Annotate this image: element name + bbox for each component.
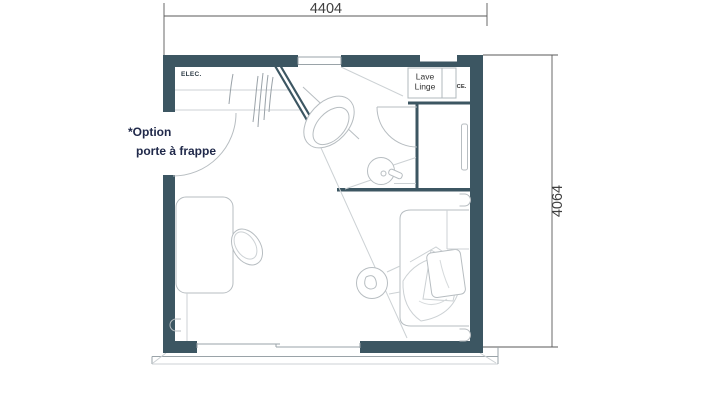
interior-walls [337, 102, 470, 192]
lave-linge-label-line2: Linge [415, 82, 436, 92]
floor-plan-drawing: 4404 4064 ELEC. Lave Linge CE. *Option p… [0, 0, 705, 410]
wall-outlet-right-bottom [460, 329, 471, 341]
bay-window [197, 343, 360, 348]
stool [357, 268, 388, 299]
ce-label: CE. [457, 84, 467, 90]
elec-label: ELEC. [181, 71, 202, 78]
bathroom-door [377, 107, 417, 147]
shower-panel [462, 124, 468, 170]
partition-guide-line [341, 67, 403, 96]
slope-line [312, 128, 407, 338]
wall-outlet-right-top [460, 194, 471, 206]
top-window [298, 57, 341, 65]
dimension-height-label: 4064 [550, 185, 566, 217]
lave-linge-label-line1: Lave [416, 72, 435, 82]
dimension-width-label: 4404 [310, 1, 342, 17]
option-note-line2: porte à frappe [136, 144, 216, 158]
dimension-right [483, 55, 558, 347]
floor-plan-canvas: 4404 4064 ELEC. Lave Linge CE. *Option p… [0, 0, 705, 410]
sink [345, 158, 416, 190]
pillow [426, 249, 466, 298]
desk [176, 197, 233, 293]
option-note-line1: *Option [128, 125, 171, 139]
bed [357, 210, 470, 326]
toilet [294, 86, 364, 157]
